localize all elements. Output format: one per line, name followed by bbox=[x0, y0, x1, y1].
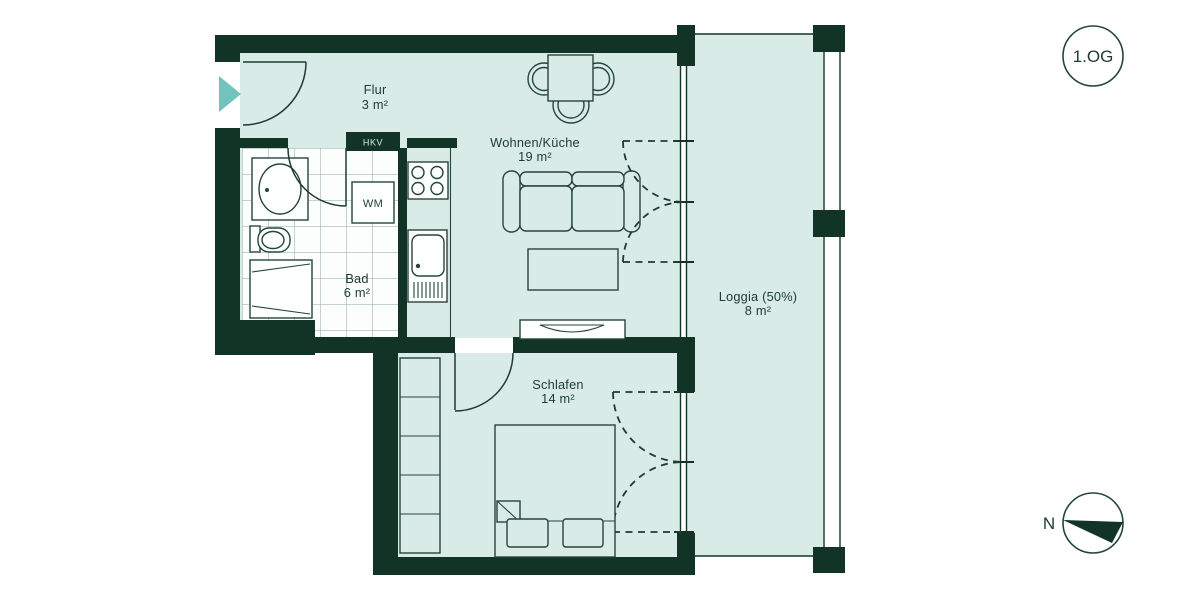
washing-machine-label: WM bbox=[363, 198, 383, 210]
room-name-flur: Flur bbox=[364, 82, 387, 97]
wall-left-lower bbox=[215, 128, 240, 355]
shower-tray bbox=[250, 260, 312, 318]
pier-facade-top bbox=[677, 25, 695, 66]
wall-kitchen-top bbox=[407, 138, 457, 148]
floor-plan-image: Flur 3 m² Wohnen/Küche 19 m² Bad 6 m² Sc… bbox=[0, 0, 1200, 600]
sofa-seat bbox=[572, 186, 624, 231]
entrance-arrow-icon bbox=[219, 76, 241, 112]
loggia-pillar-top bbox=[813, 25, 845, 52]
tv-sideboard bbox=[520, 320, 625, 339]
room-area-loggia: 8 m² bbox=[745, 303, 772, 318]
basin-drain bbox=[265, 188, 269, 192]
loggia-pillar-bottom bbox=[813, 547, 845, 573]
dining-table bbox=[548, 55, 593, 101]
wall-bath-kitchen bbox=[398, 148, 407, 338]
room-name-loggia: Loggia (50%) bbox=[719, 289, 798, 304]
floor-plan-page: Flur 3 m² Wohnen/Küche 19 m² Bad 6 m² Sc… bbox=[0, 0, 1200, 600]
sofa-armrest bbox=[503, 171, 520, 232]
vanity-counter bbox=[252, 158, 308, 220]
wall-left-upper bbox=[215, 35, 240, 62]
pillow bbox=[563, 519, 603, 547]
coffee-table bbox=[528, 249, 618, 290]
compass: N bbox=[1043, 493, 1123, 553]
room-name-bad: Bad bbox=[345, 271, 368, 286]
wall-bedroom-bottom bbox=[373, 557, 677, 575]
room-area-wohnen: 19 m² bbox=[518, 149, 552, 164]
pillow bbox=[507, 519, 548, 547]
pier-facade-bottom bbox=[677, 533, 695, 575]
loggia-pillar-mid bbox=[813, 210, 845, 237]
hkv-label: HKV bbox=[363, 138, 383, 148]
room-area-bad: 6 m² bbox=[344, 285, 371, 300]
sofa-seat bbox=[520, 186, 572, 231]
wardrobe bbox=[400, 358, 440, 553]
sink-drain bbox=[416, 264, 420, 268]
sofa-backrest bbox=[520, 172, 572, 186]
compass-north-label: N bbox=[1043, 514, 1055, 533]
wall-bath-top bbox=[240, 138, 288, 148]
sofa-backrest bbox=[572, 172, 624, 186]
room-area-flur: 3 m² bbox=[362, 97, 389, 112]
room-name-wohnen: Wohnen/Küche bbox=[490, 135, 580, 150]
floor-badge-text: 1.OG bbox=[1073, 47, 1114, 66]
wall-top bbox=[215, 35, 695, 53]
floor-badge: 1.OG bbox=[1063, 26, 1123, 86]
wall-bath-corner bbox=[240, 320, 315, 355]
room-name-schlafen: Schlafen bbox=[532, 377, 583, 392]
wall-bedroom-left bbox=[373, 345, 398, 575]
pier-facade-mid bbox=[677, 337, 695, 392]
room-area-schlafen: 14 m² bbox=[541, 391, 575, 406]
